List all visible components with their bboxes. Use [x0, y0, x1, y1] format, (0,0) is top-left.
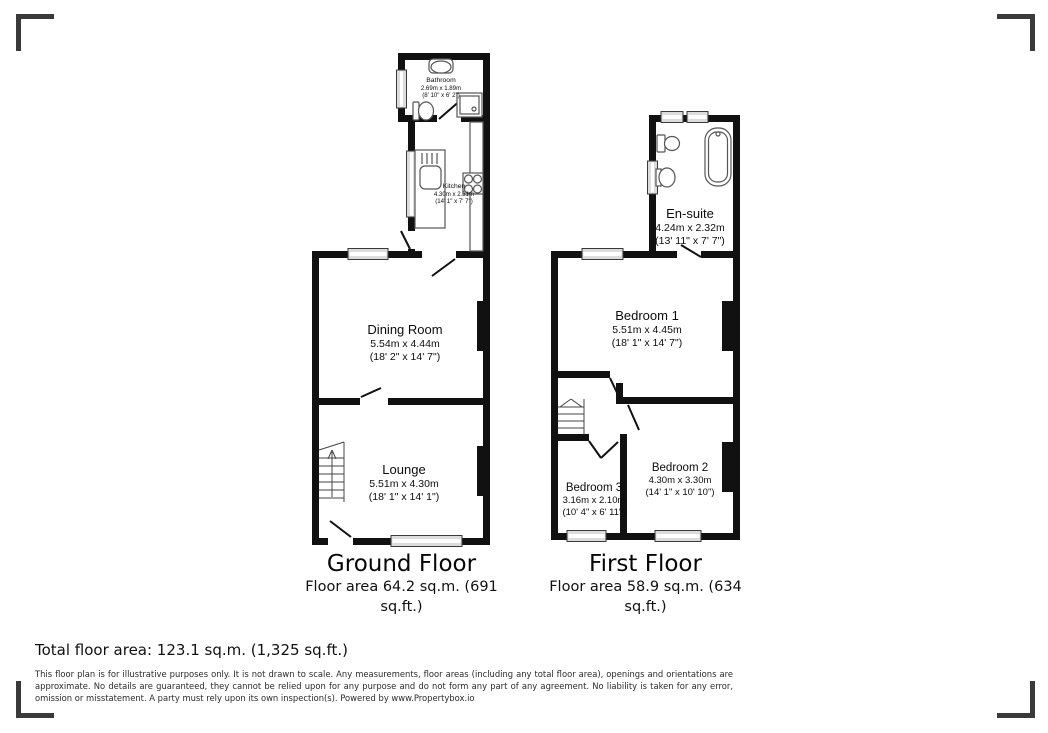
room-size-metric: 5.51m x 4.45m — [587, 324, 707, 337]
window — [582, 249, 623, 260]
room-size-imperial: (8' 10" x 6' 2") — [406, 92, 476, 99]
room-size-imperial: (13' 11" x 7' 7") — [637, 235, 743, 248]
room-size-imperial: (18' 1" x 14' 1") — [344, 491, 464, 504]
bathtub-icon — [705, 128, 731, 186]
room-name: Bathroom — [406, 77, 476, 85]
room-name: Bedroom 3 — [546, 481, 642, 495]
room-size-metric: 5.51m x 4.30m — [344, 478, 464, 491]
door-leaf — [330, 521, 351, 537]
room-size-metric: 4.24m x 2.32m — [637, 222, 743, 235]
ground-floor-area: Floor area 64.2 sq.m. (691 — [281, 577, 522, 597]
room-size-imperial: (18' 2" x 14' 7") — [345, 351, 465, 364]
window — [397, 70, 407, 108]
crop-corner-top-left — [16, 14, 54, 51]
room-name: Bedroom 1 — [587, 308, 707, 324]
door-leaf — [601, 442, 618, 458]
crop-corner-top-right — [997, 14, 1035, 51]
toilet-icon — [413, 102, 434, 120]
window — [567, 531, 606, 542]
door-leaf — [401, 231, 410, 249]
door-leaf — [361, 388, 381, 397]
window — [661, 112, 683, 123]
room-label-en-suite: En-suite 4.24m x 2.32m (13' 11" x 7' 7") — [637, 206, 743, 247]
disclaimer-text: This floor plan is for illustrative purp… — [35, 668, 733, 705]
room-name: Kitchen — [425, 183, 483, 191]
ground-floor-area-cont: sq.ft.) — [281, 597, 522, 617]
room-size-imperial: (18' 1" x 14' 7") — [587, 337, 707, 350]
room-label-lounge: Lounge 5.51m x 4.30m (18' 1" x 14' 1") — [344, 462, 464, 503]
door-leaf — [432, 259, 455, 276]
room-size-metric: 2.69m x 1.89m — [406, 85, 476, 92]
floor-plan-page: Bathroom 2.69m x 1.89m (8' 10" x 6' 2") … — [0, 0, 1048, 733]
chimney-breast — [477, 446, 490, 496]
room-name: Bedroom 2 — [619, 461, 741, 475]
room-name: En-suite — [637, 206, 743, 222]
room-size-imperial: (10' 4" x 6' 11") — [546, 507, 642, 519]
room-label-dining-room: Dining Room 5.54m x 4.44m (18' 2" x 14' … — [345, 322, 465, 363]
toilet-icon — [657, 135, 680, 152]
room-name: Dining Room — [345, 322, 465, 338]
stairs-icon — [558, 399, 584, 434]
room-label-bedroom-3: Bedroom 3 3.16m x 2.10m (10' 4" x 6' 11"… — [546, 481, 642, 518]
door-leaf — [628, 405, 639, 430]
ground-floor-title: Ground Floor — [281, 551, 522, 577]
chimney-breast — [722, 301, 740, 351]
first-floor-fixtures — [558, 128, 731, 434]
crop-corner-bottom-right — [997, 681, 1035, 718]
room-label-bedroom-1: Bedroom 1 5.51m x 4.45m (18' 1" x 14' 7"… — [587, 308, 707, 349]
room-name: Lounge — [344, 462, 464, 478]
window — [687, 112, 708, 123]
basin-icon — [429, 59, 453, 73]
room-size-metric: 5.54m x 4.44m — [345, 338, 465, 351]
first-floor-title: First Floor — [525, 551, 766, 577]
first-floor-caption: First Floor Floor area 58.9 sq.m. (634 s… — [525, 551, 766, 617]
room-size-imperial: (14' 1" x 7' 7") — [425, 198, 483, 205]
first-floor-doors — [589, 245, 701, 458]
room-label-bathroom: Bathroom 2.69m x 1.89m (8' 10" x 6' 2") — [406, 77, 476, 99]
total-floor-area: Total floor area: 123.1 sq.m. (1,325 sq.… — [35, 641, 348, 659]
room-size-metric: 3.16m x 2.10m — [546, 495, 642, 507]
sink-icon — [656, 168, 675, 187]
window — [348, 249, 388, 260]
stairs-icon — [319, 442, 344, 502]
window — [655, 531, 701, 542]
door-leaf — [589, 441, 601, 458]
room-label-kitchen: Kitchen 4.30m x 2.31m (14' 1" x 7' 7") — [425, 183, 483, 205]
ground-floor-fixtures — [319, 59, 483, 502]
ground-floor-caption: Ground Floor Floor area 64.2 sq.m. (691 … — [281, 551, 522, 617]
window — [391, 536, 462, 547]
chimney-breast — [477, 301, 490, 351]
room-size-metric: 4.30m x 2.31m — [425, 191, 483, 198]
first-floor-area-cont: sq.ft.) — [525, 597, 766, 617]
first-floor-area: Floor area 58.9 sq.m. (634 — [525, 577, 766, 597]
